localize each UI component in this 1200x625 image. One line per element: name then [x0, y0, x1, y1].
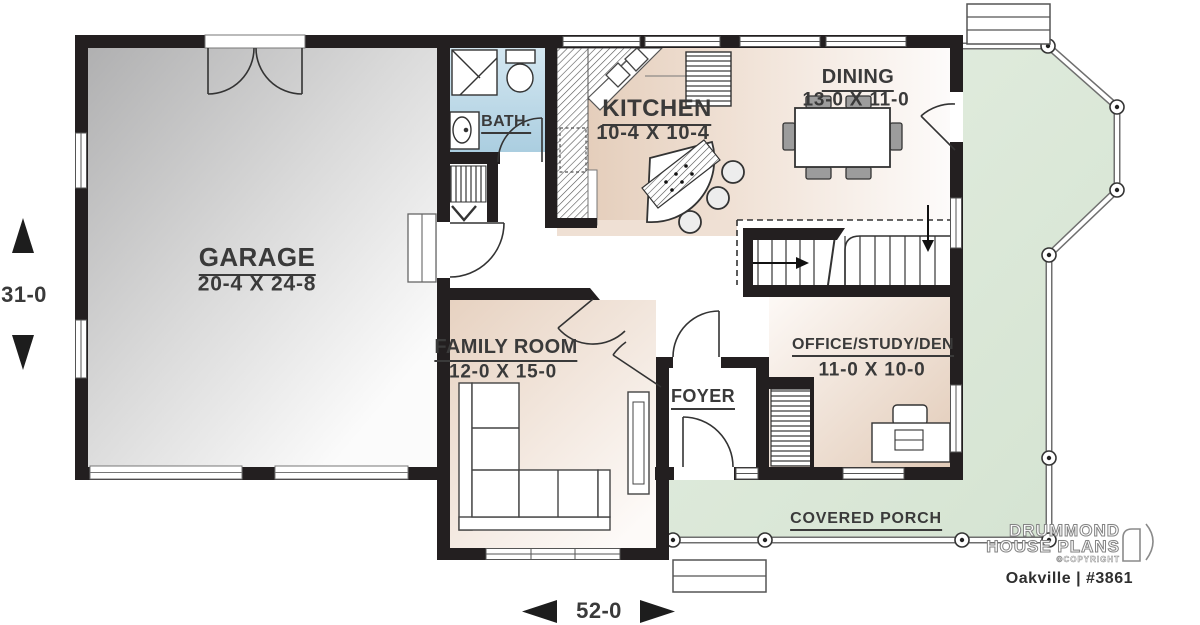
plan-id: Oakville | #3861 [833, 570, 1133, 588]
family-room-size: 12-0 X 15-0 [449, 363, 557, 382]
overall-depth-dimension: 31-0 [1, 284, 47, 306]
kitchen-size: 10-4 X 10-4 [596, 123, 709, 143]
dining-table [795, 108, 890, 167]
foyer-hall-door [673, 311, 721, 368]
brand-copyright: ©COPYRIGHT [860, 555, 1120, 564]
foyer-sidelight-window [736, 468, 758, 479]
dining-window [826, 37, 906, 47]
office-bottom-window [843, 468, 904, 479]
entry-closet [450, 166, 486, 220]
depth-arrow-up-icon [12, 218, 34, 253]
office-side-window [951, 385, 962, 452]
garage-entry-door [437, 222, 504, 278]
dining-window [740, 37, 820, 47]
stair-landing-window [951, 198, 962, 248]
floor-plan-canvas: GARAGE 20-4 X 24-8 BATH. KITCHEN 10-4 X … [0, 0, 1200, 625]
stair-landing-edge [845, 236, 950, 285]
office-label: OFFICE/STUDY/DEN [792, 337, 954, 353]
media-unit [628, 392, 649, 494]
closet-hook-icon [452, 206, 476, 220]
bath-label: BATH. [481, 114, 531, 130]
garage-side-window [76, 133, 87, 188]
kitchen-label: KITCHEN [602, 97, 711, 121]
office-size: 11-0 X 10-0 [818, 361, 925, 380]
dining-label: DINING [822, 67, 894, 87]
garage-overhead-door [90, 466, 242, 479]
family-room-window [486, 549, 620, 560]
bath-sink [450, 112, 479, 149]
foyer-label: FOYER [671, 387, 735, 405]
toilet [506, 50, 535, 92]
front-door [674, 417, 734, 480]
porch-steps-top [967, 4, 1050, 44]
foyer-closet [771, 389, 812, 466]
kitchen-window [563, 37, 640, 47]
shower [452, 50, 497, 95]
brand-logo: DRUMMOND HOUSE PLANS ©COPYRIGHT [860, 523, 1120, 564]
counter-end-panel [588, 170, 597, 225]
depth-arrow-down-icon [12, 335, 34, 370]
brand-mark-icon [1120, 520, 1164, 564]
porch-steps-bottom [673, 560, 766, 592]
garage-size: 20-4 X 24-8 [198, 274, 317, 295]
garage-overhead-door [275, 466, 408, 479]
brand-line2: HOUSE PLANS [860, 539, 1120, 555]
dining-size: 13-0 X 11-0 [802, 91, 909, 110]
garage-side-window [76, 320, 87, 378]
garage-label: GARAGE [199, 244, 316, 270]
office-chair [893, 405, 927, 425]
width-arrow-right-icon [640, 600, 675, 623]
width-arrow-left-icon [522, 600, 557, 623]
garage-stoop [408, 214, 436, 282]
overall-width-dimension: 52-0 [576, 600, 622, 622]
family-room-label: FAMILY ROOM [434, 337, 577, 357]
kitchen-window [645, 37, 720, 47]
